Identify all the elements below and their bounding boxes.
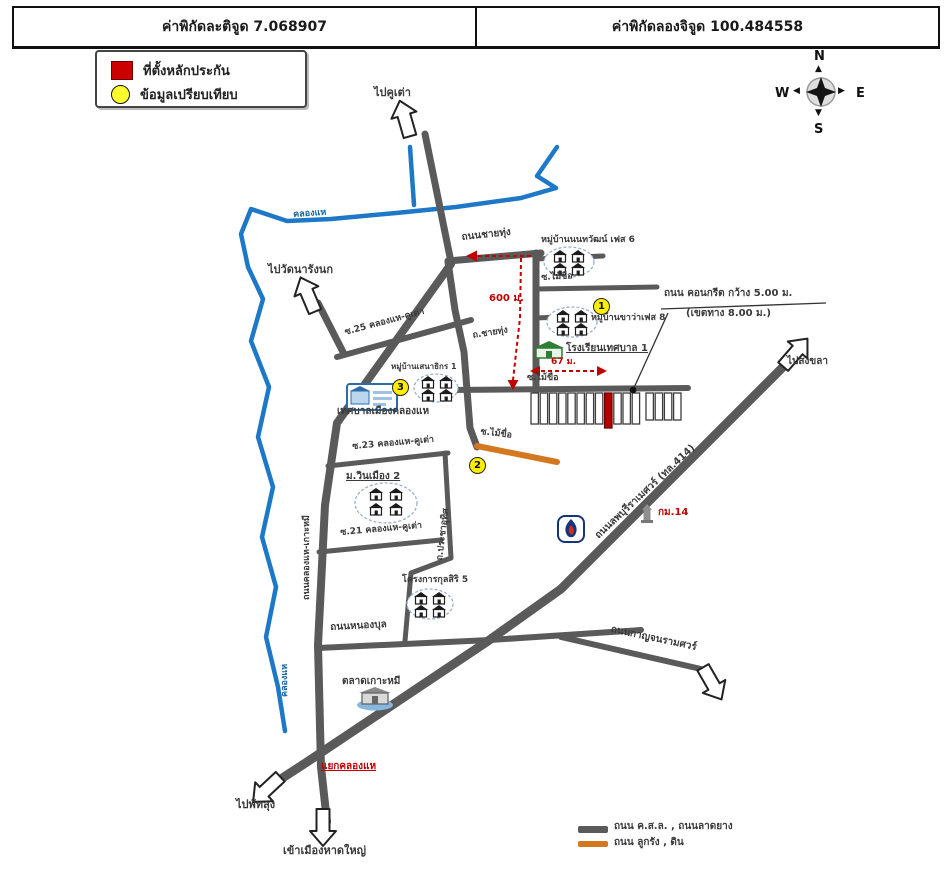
arrow-hatyai-icon — [310, 809, 336, 846]
label-municipality: เทศบาลเมืองคลองแห — [337, 406, 429, 417]
village-clusters — [355, 247, 597, 619]
canal-stub-line — [410, 147, 414, 205]
road-to-khu-tao — [425, 134, 451, 262]
pledge-site-unit — [605, 393, 612, 428]
map-canvas — [0, 0, 950, 880]
dashed-600m-vertical — [513, 258, 521, 380]
label-road-khlonghae-komi: ถนนคลองแห-เกาะหมี — [303, 515, 313, 600]
gas-station-icon — [558, 516, 584, 542]
road-block-west — [448, 262, 477, 447]
label-legend-paved: ถนน ค.ส.ล. , ถนนลาดยาง — [614, 821, 733, 832]
comparable-marker-2: 2 — [469, 457, 486, 474]
label-village-phase6: หมู่บ้านนนทวัฒน์ เฟส 6 — [541, 236, 635, 246]
label-600m: 600 ม. — [489, 293, 524, 304]
pointer-dot — [630, 387, 637, 394]
label-village-senathikon: หมู่บ้านเสนาธิกร 1 — [391, 363, 457, 372]
map-page: ค่าพิกัดละติจูด 7.068907 ค่าพิกัดลองจิจู… — [0, 0, 950, 880]
label-canal-khlong-hae-2: คลองแห — [281, 664, 291, 697]
unpaved-road-sample — [578, 841, 608, 847]
road-unpaved-segment — [477, 446, 557, 462]
comparable-marker-1: 1 — [593, 298, 610, 315]
label-km-14: กม.14 — [658, 507, 688, 518]
arrow-khu-tao-icon — [387, 97, 422, 140]
label-to-hatyai: เข้าเมืองหาดใหญ่ — [283, 845, 366, 857]
road-shophouse-street — [449, 388, 688, 390]
label-soi-mai-khue-2: ซ.ไม้ขื่อ — [527, 374, 559, 384]
label-village-winmueang: ม.วินเมือง 2 — [346, 471, 400, 482]
label-to-phatthalung: ไปพัทลุง — [236, 799, 275, 811]
label-school: โรงเรียนเทศบาล 1 — [566, 343, 648, 354]
label-project-kulsiri: โครงการกุลสิริ 5 — [402, 576, 468, 586]
road-soi-mai-khue — [536, 287, 657, 289]
road-to-wat-stub — [318, 303, 343, 352]
label-junction-khlonghae: แยกคลองแห — [321, 761, 376, 772]
arrow-wat-icon — [289, 272, 327, 316]
road-network — [264, 134, 797, 822]
shophouse-strip — [531, 393, 681, 428]
market-icon — [357, 687, 393, 711]
label-village-phase8: หมู่บ้านขาว่าเฟส 8 — [591, 314, 665, 324]
label-soi-mai-khue-1: ซ.ไม้ขื่อ — [541, 272, 573, 284]
road-soi-21 — [319, 540, 441, 552]
paved-road-sample — [578, 826, 608, 833]
label-concrete-road-2: (เขตทาง 8.00 ม.) — [686, 308, 771, 319]
label-to-songkhla: ไปสงขลา — [787, 356, 828, 367]
label-to-wat-na-rang-nok: ไปวัดนารังนก — [268, 264, 333, 276]
label-legend-unpaved: ถนน ลูกรัง , ดิน — [614, 837, 684, 848]
label-67m: 67 ม. — [551, 358, 576, 368]
road-soi-23 — [328, 453, 448, 466]
comparable-marker-3: 3 — [392, 379, 409, 396]
label-market-komi: ตลาดเกาะหมี — [342, 676, 400, 687]
label-concrete-road-1: ถนน คอนกรีต กว้าง 5.00 ม. — [664, 288, 792, 299]
label-to-khu-tao: ไปคูเต่า — [374, 87, 411, 99]
